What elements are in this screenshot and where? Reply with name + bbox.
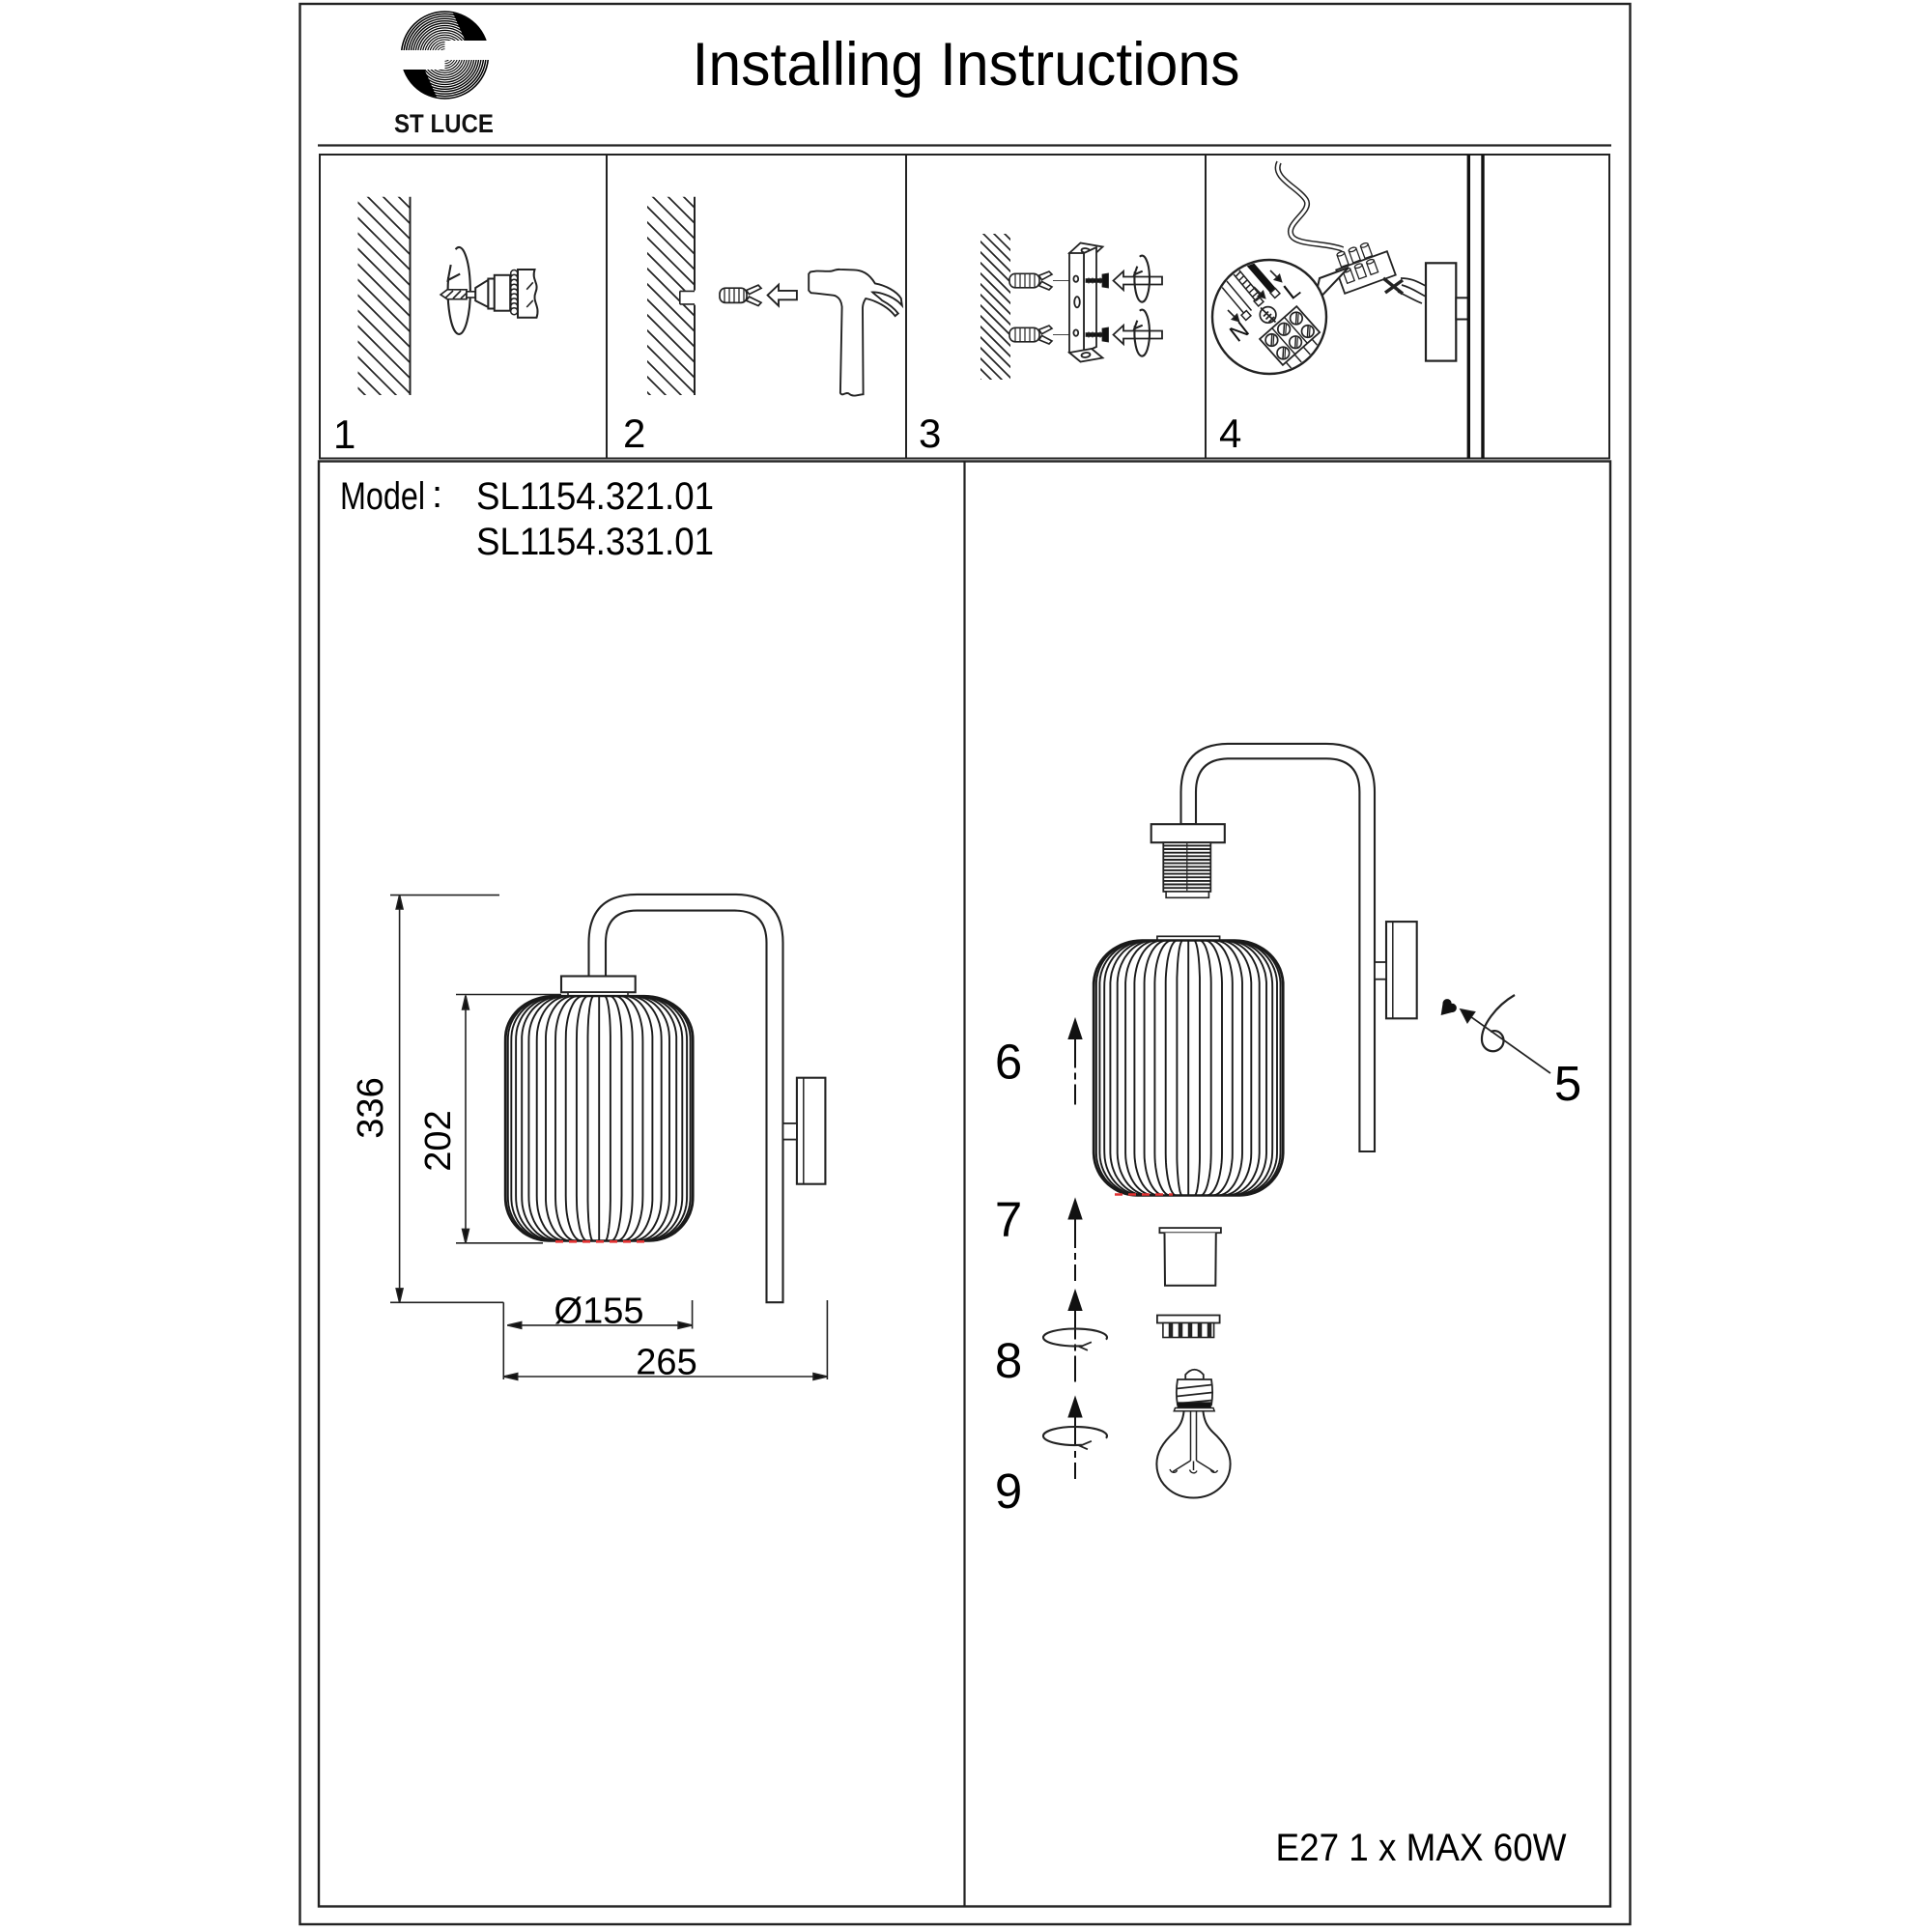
svg-text:7: 7	[995, 1192, 1022, 1247]
svg-text:SL1154.321.01: SL1154.321.01	[476, 475, 714, 518]
svg-text:5: 5	[1554, 1056, 1581, 1111]
svg-text:Model: Model	[340, 475, 425, 518]
svg-text:E27 1 x MAX 60W: E27 1 x MAX 60W	[1276, 1827, 1567, 1869]
svg-text:9: 9	[995, 1463, 1022, 1519]
svg-text:6: 6	[995, 1035, 1022, 1090]
svg-text:4: 4	[1219, 411, 1241, 456]
svg-text:265: 265	[636, 1343, 696, 1383]
svg-text:ST LUCE: ST LUCE	[394, 109, 494, 138]
svg-text:2: 2	[623, 411, 645, 456]
svg-text:8: 8	[995, 1333, 1022, 1388]
svg-text:SL1154.331.01: SL1154.331.01	[476, 521, 714, 563]
svg-text:1: 1	[333, 412, 355, 457]
svg-text:Ø155: Ø155	[554, 1292, 644, 1332]
svg-text::: :	[432, 473, 442, 516]
svg-text:3: 3	[919, 411, 941, 456]
svg-text:Installing Instructions: Installing Instructions	[693, 31, 1240, 99]
svg-text:336: 336	[351, 1077, 391, 1138]
svg-text:202: 202	[418, 1110, 459, 1171]
